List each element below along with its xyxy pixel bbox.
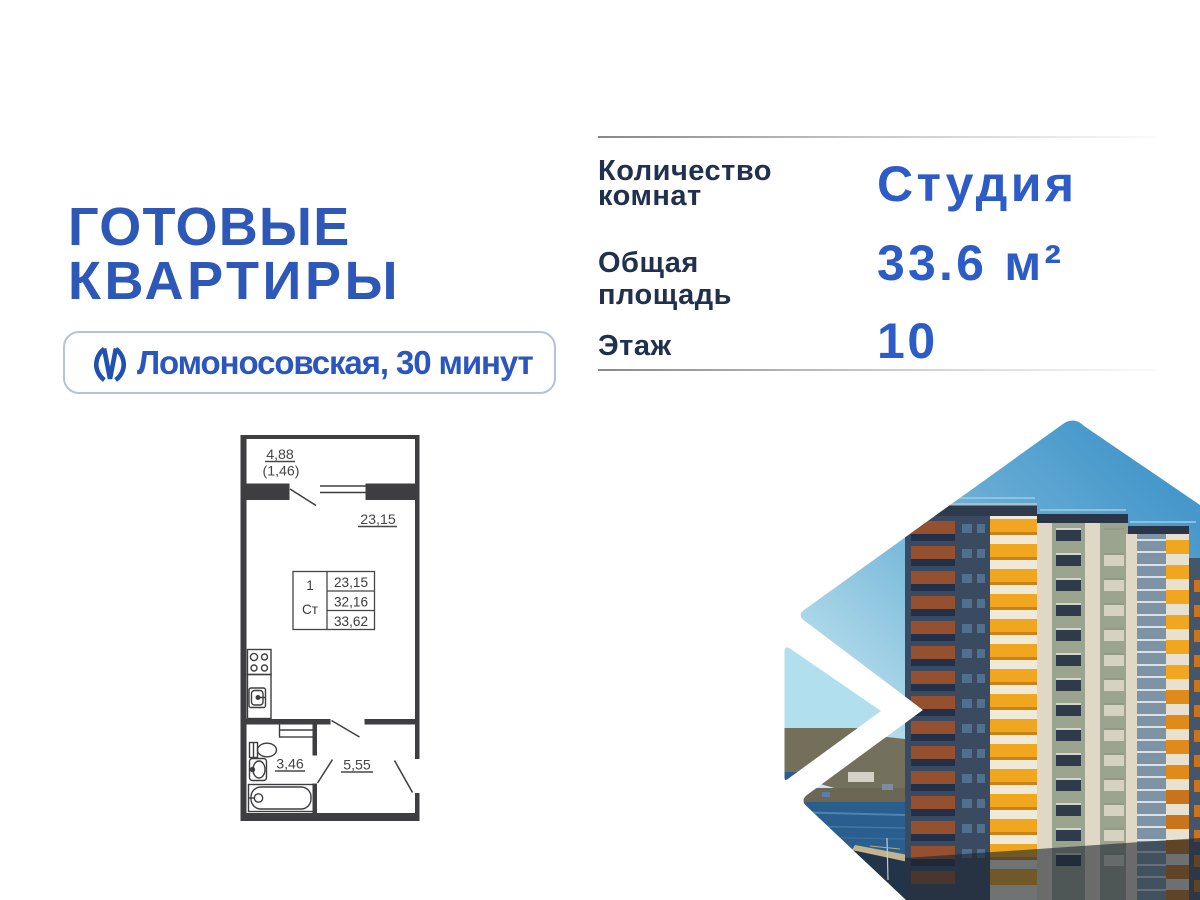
svg-text:Ст: Ст <box>302 602 318 617</box>
svg-text:32,16: 32,16 <box>334 595 368 610</box>
svg-text:(1,46): (1,46) <box>262 464 299 480</box>
svg-text:1: 1 <box>306 578 314 593</box>
svg-text:5,55: 5,55 <box>343 758 371 774</box>
svg-text:23,15: 23,15 <box>360 512 396 528</box>
svg-text:23,15: 23,15 <box>334 575 368 590</box>
svg-text:33,62: 33,62 <box>334 614 368 629</box>
svg-text:4,88: 4,88 <box>266 447 294 463</box>
svg-text:3,46: 3,46 <box>276 757 304 773</box>
